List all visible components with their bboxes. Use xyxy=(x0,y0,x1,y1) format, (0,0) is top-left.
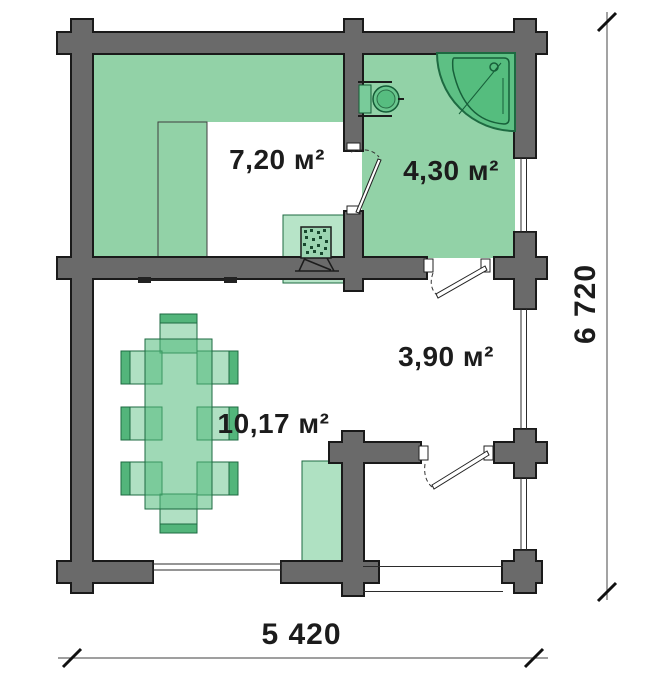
room-area-label-lounge: 10,17 м² xyxy=(206,408,341,440)
room-area-label-washroom: 4,30 м² xyxy=(391,155,511,187)
floor-plan-drawing xyxy=(0,0,668,700)
floor-plan: 7,20 м² 4,30 м² 10,17 м² 3,90 м² 6 720 5… xyxy=(0,0,668,700)
window-right-porch xyxy=(515,477,535,551)
dimension-width-label: 5 420 xyxy=(239,618,364,652)
door-entrance xyxy=(425,451,489,489)
room-area-label-hallway: 3,90 м² xyxy=(386,341,506,373)
porch-edge xyxy=(363,567,503,592)
sauna-bench-tier xyxy=(158,122,207,258)
dimension-height-label: 6 720 xyxy=(569,239,603,369)
door-leaf xyxy=(436,266,487,298)
window-bottom xyxy=(152,562,282,582)
door-swing-arc xyxy=(431,273,437,295)
room-area-label-sauna: 7,20 м² xyxy=(207,144,347,176)
jamb-block xyxy=(419,446,428,460)
door-swing-arc xyxy=(425,464,432,487)
door-washroom-hallway xyxy=(431,266,487,298)
counter xyxy=(302,461,345,565)
window-right-washroom xyxy=(515,157,535,233)
window-right-hallway xyxy=(515,308,535,430)
door-leaf xyxy=(432,451,489,489)
jamb-block xyxy=(347,143,360,150)
jamb-block xyxy=(424,259,433,272)
dining-table xyxy=(145,339,212,509)
